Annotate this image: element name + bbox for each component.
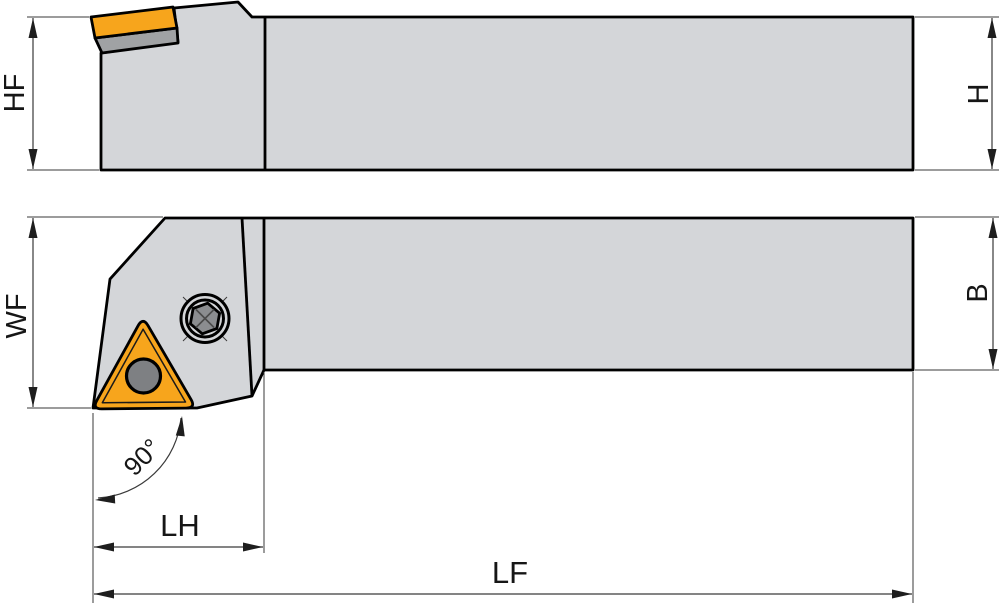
arrowhead-icon — [94, 590, 114, 599]
dimension-b: B — [915, 217, 999, 370]
arrowhead-icon — [892, 590, 912, 599]
angle-label: 90° — [118, 433, 167, 482]
dimension-h: H — [915, 17, 999, 170]
dimension-hf: HF — [0, 17, 99, 170]
arrowhead-icon — [989, 349, 998, 369]
dimension-lf: LF — [94, 555, 912, 599]
arrowhead-icon — [989, 218, 998, 238]
clamp-screw — [181, 295, 229, 343]
arrowhead-icon — [95, 494, 115, 504]
dimension-lh: LH — [94, 508, 263, 552]
arrowhead-icon — [243, 543, 263, 552]
arrowhead-icon — [94, 543, 114, 552]
arrowhead-icon — [29, 149, 38, 169]
arrowhead-icon — [29, 218, 38, 238]
arrowhead-icon — [988, 149, 997, 169]
dimension-label-lh: LH — [160, 508, 200, 543]
dimension-label-b: B — [962, 283, 994, 302]
side-view-body — [101, 2, 913, 170]
side-view — [91, 2, 913, 170]
technical-drawing: HF H — [0, 0, 1000, 607]
arrowhead-icon — [988, 18, 997, 38]
arrowhead-icon — [29, 18, 38, 38]
front-view — [93, 218, 913, 409]
dimension-label-lf: LF — [492, 555, 528, 590]
angle-annotation: 90° — [95, 416, 187, 505]
arrowhead-icon — [29, 387, 38, 407]
insert-hole — [127, 359, 161, 393]
dimension-label-hf: HF — [0, 74, 31, 113]
dimension-label-wf: WF — [1, 293, 33, 338]
dimension-label-h: H — [963, 84, 995, 105]
